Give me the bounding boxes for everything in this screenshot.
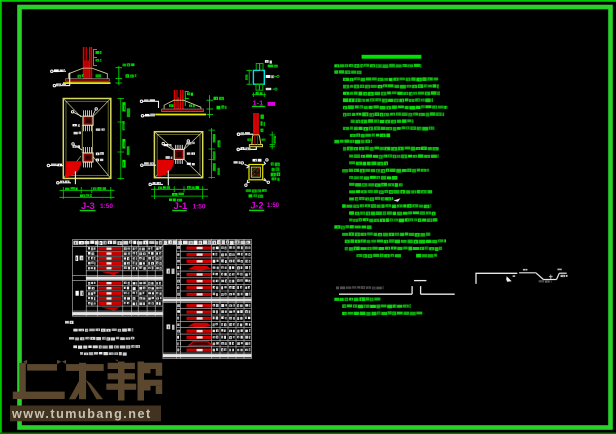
svg-text:1:50: 1:50 <box>193 204 206 211</box>
svg-text:1:50: 1:50 <box>267 203 280 209</box>
svg-text:1:50: 1:50 <box>100 203 113 210</box>
svg-text:J-2: J-2 <box>251 201 264 211</box>
svg-text:www.tumubang.net: www.tumubang.net <box>11 407 152 421</box>
